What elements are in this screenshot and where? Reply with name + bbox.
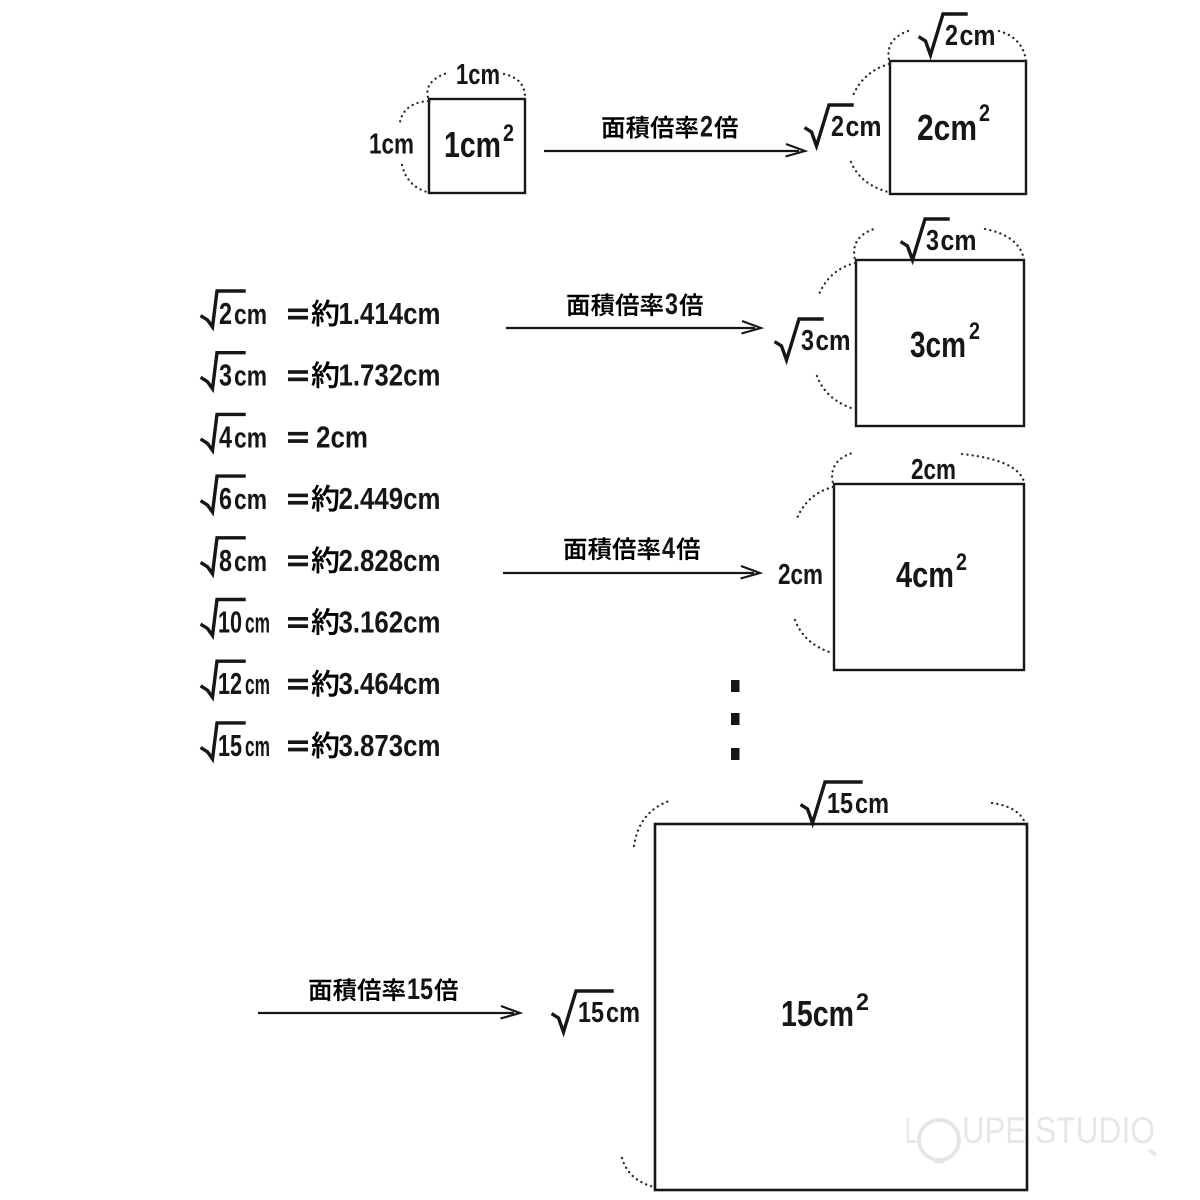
svg-text:2: 2 [969, 318, 980, 345]
svg-text:cm: cm [816, 325, 851, 357]
svg-text:cm: cm [234, 422, 267, 454]
svg-text:cm: cm [234, 299, 267, 331]
svg-text:15: 15 [407, 973, 433, 1006]
svg-text:cm: cm [846, 111, 882, 143]
svg-text:cm: cm [606, 997, 640, 1029]
svg-text:2: 2 [956, 549, 967, 576]
svg-text:1cm: 1cm [444, 124, 501, 165]
svg-text:2.449cm: 2.449cm [339, 481, 441, 516]
svg-text:15cm: 15cm [781, 993, 854, 1034]
svg-text:cm: cm [234, 484, 267, 516]
svg-text:8: 8 [219, 543, 232, 578]
svg-text:2: 2 [700, 111, 713, 144]
svg-text:cm: cm [245, 608, 270, 640]
svg-text:3: 3 [219, 358, 232, 393]
svg-text:6: 6 [219, 481, 232, 516]
svg-text:2: 2 [945, 20, 958, 52]
svg-text:1cm: 1cm [369, 129, 414, 161]
svg-text:15: 15 [578, 997, 604, 1029]
svg-text:cm: cm [234, 361, 267, 393]
svg-text:cm: cm [855, 788, 889, 820]
svg-text:cm: cm [960, 20, 996, 52]
svg-text:2: 2 [831, 111, 844, 143]
svg-text:3.464cm: 3.464cm [339, 666, 441, 701]
svg-text:cm: cm [245, 731, 270, 763]
svg-text:4: 4 [662, 532, 675, 565]
svg-text:3: 3 [801, 325, 814, 357]
svg-text:2: 2 [979, 100, 990, 127]
svg-text:2cm: 2cm [911, 454, 956, 486]
svg-text:3.162cm: 3.162cm [339, 605, 441, 640]
svg-text:2cm: 2cm [316, 419, 368, 454]
svg-text:3: 3 [926, 225, 939, 257]
svg-text:1.732cm: 1.732cm [339, 358, 441, 393]
svg-text:3: 3 [665, 288, 678, 321]
svg-text:cm: cm [234, 546, 267, 578]
svg-text:1.414cm: 1.414cm [339, 296, 441, 331]
svg-text:STUDIO: STUDIO [1035, 1110, 1155, 1151]
svg-text:cm: cm [941, 225, 977, 257]
svg-text:cm: cm [245, 669, 270, 701]
svg-text:3.873cm: 3.873cm [339, 728, 441, 763]
svg-text:2: 2 [219, 296, 232, 331]
svg-text:1cm: 1cm [456, 59, 500, 91]
svg-text:2: 2 [856, 989, 869, 1016]
svg-text:3cm: 3cm [910, 324, 966, 365]
svg-text:4cm: 4cm [896, 554, 954, 595]
svg-text:2cm: 2cm [917, 107, 977, 148]
svg-text:15: 15 [827, 788, 853, 820]
svg-text:L: L [905, 1110, 917, 1151]
svg-text:10: 10 [218, 605, 242, 640]
svg-text:2cm: 2cm [778, 559, 823, 591]
svg-text:12: 12 [218, 666, 242, 701]
svg-text:2: 2 [503, 120, 514, 147]
svg-text:2.828cm: 2.828cm [339, 543, 441, 578]
svg-text:4: 4 [219, 419, 233, 454]
svg-text:UPE: UPE [962, 1110, 1026, 1151]
svg-text:15: 15 [218, 728, 242, 763]
